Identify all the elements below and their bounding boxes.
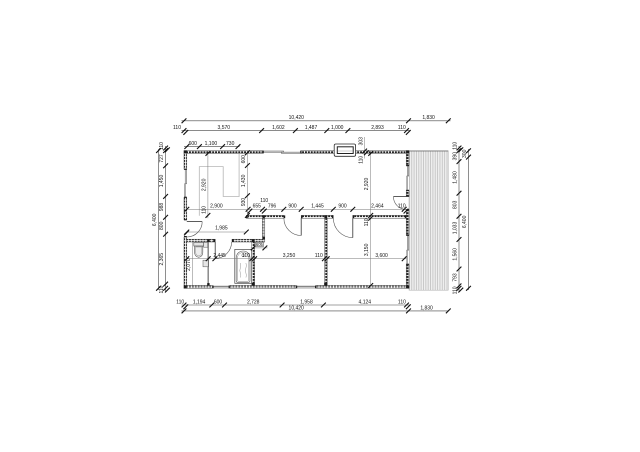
svg-text:110: 110 [398,204,406,210]
svg-text:1,194: 1,194 [193,299,206,305]
svg-text:2,893: 2,893 [371,125,384,131]
svg-text:1,985: 1,985 [215,226,228,232]
svg-text:1,958: 1,958 [300,299,313,305]
svg-text:793: 793 [453,273,459,282]
svg-text:1,560: 1,560 [453,248,459,261]
svg-text:803: 803 [453,200,459,209]
svg-text:655: 655 [253,204,262,210]
svg-text:2,365: 2,365 [159,253,165,266]
svg-text:3,600: 3,600 [375,253,388,259]
svg-text:1,830: 1,830 [420,306,433,312]
svg-text:2,920: 2,920 [201,178,207,191]
svg-text:3,570: 3,570 [218,125,231,131]
svg-text:110: 110 [159,285,165,293]
svg-text:1,000: 1,000 [331,125,344,131]
svg-text:2,900: 2,900 [210,204,223,210]
svg-text:110: 110 [315,253,323,259]
svg-text:1,430: 1,430 [241,174,247,187]
svg-text:110: 110 [358,156,364,164]
svg-text:900: 900 [288,204,297,210]
svg-text:10,420: 10,420 [289,306,305,312]
svg-text:730: 730 [226,141,235,147]
svg-text:600: 600 [241,155,247,164]
svg-text:300: 300 [462,149,468,158]
svg-text:988: 988 [159,203,165,212]
svg-text:110: 110 [202,206,208,214]
svg-text:110: 110 [398,125,406,131]
svg-text:2,920: 2,920 [364,178,370,191]
svg-text:2,445: 2,445 [213,253,226,259]
svg-text:600: 600 [189,141,198,147]
svg-text:390: 390 [453,152,459,161]
svg-text:110: 110 [398,299,406,305]
svg-text:110: 110 [364,218,370,226]
svg-text:110: 110 [453,142,459,150]
svg-text:930: 930 [241,198,247,207]
svg-text:110: 110 [159,142,165,150]
svg-text:2,464: 2,464 [371,204,384,210]
svg-text:600: 600 [214,299,223,305]
svg-text:1,480: 1,480 [453,171,459,184]
svg-text:1,450: 1,450 [159,175,165,188]
svg-text:110: 110 [242,253,250,259]
svg-text:6,400: 6,400 [462,215,468,228]
svg-text:900: 900 [338,204,347,210]
svg-text:3,150: 3,150 [364,243,370,256]
svg-text:3,250: 3,250 [283,253,296,259]
svg-text:800: 800 [159,221,165,230]
svg-text:605: 605 [256,242,264,247]
svg-text:10,420: 10,420 [289,115,305,121]
svg-text:1,602: 1,602 [272,125,285,131]
svg-text:4,124: 4,124 [359,299,372,305]
svg-text:110: 110 [453,286,459,294]
svg-text:796: 796 [268,204,277,210]
svg-text:110: 110 [176,299,184,305]
svg-text:1,033: 1,033 [453,222,459,235]
svg-text:6,400: 6,400 [152,213,158,226]
svg-text:1,445: 1,445 [311,204,324,210]
svg-text:303: 303 [358,137,364,146]
svg-text:1,487: 1,487 [305,125,318,131]
svg-text:1,100: 1,100 [205,141,218,147]
svg-text:2,728: 2,728 [247,299,260,305]
svg-text:110: 110 [173,125,181,131]
svg-text:2,070: 2,070 [186,258,192,271]
svg-text:1,830: 1,830 [422,115,435,121]
svg-text:727: 727 [159,154,165,163]
svg-text:110: 110 [260,198,268,204]
